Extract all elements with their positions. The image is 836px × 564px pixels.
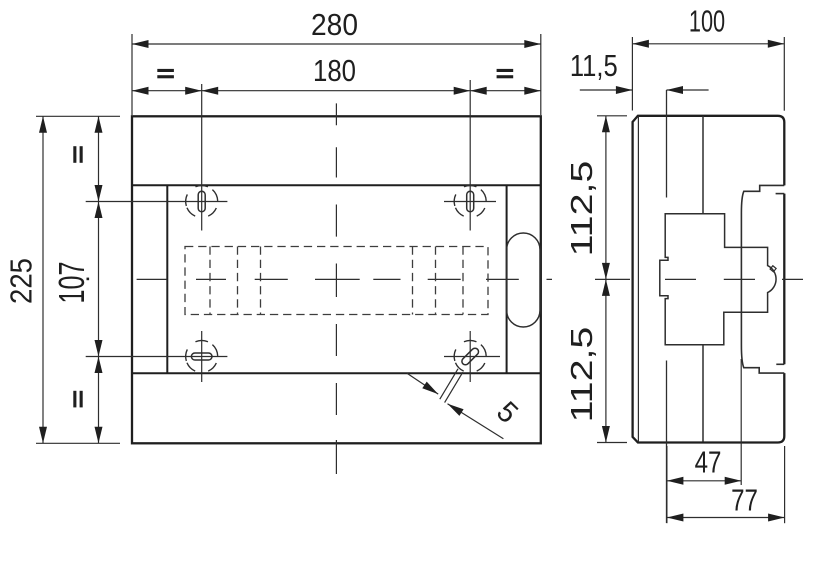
svg-text:112,5: 112,5 (564, 161, 599, 257)
svg-text:47: 47 (695, 444, 722, 479)
svg-text:11,5: 11,5 (570, 48, 618, 83)
svg-text:107: 107 (51, 262, 92, 304)
svg-text:180: 180 (313, 53, 356, 88)
svg-text:280: 280 (311, 7, 358, 42)
svg-text:112,5: 112,5 (564, 327, 599, 423)
svg-text:225: 225 (4, 258, 39, 304)
svg-text:100: 100 (689, 4, 725, 39)
svg-text:77: 77 (731, 482, 758, 517)
